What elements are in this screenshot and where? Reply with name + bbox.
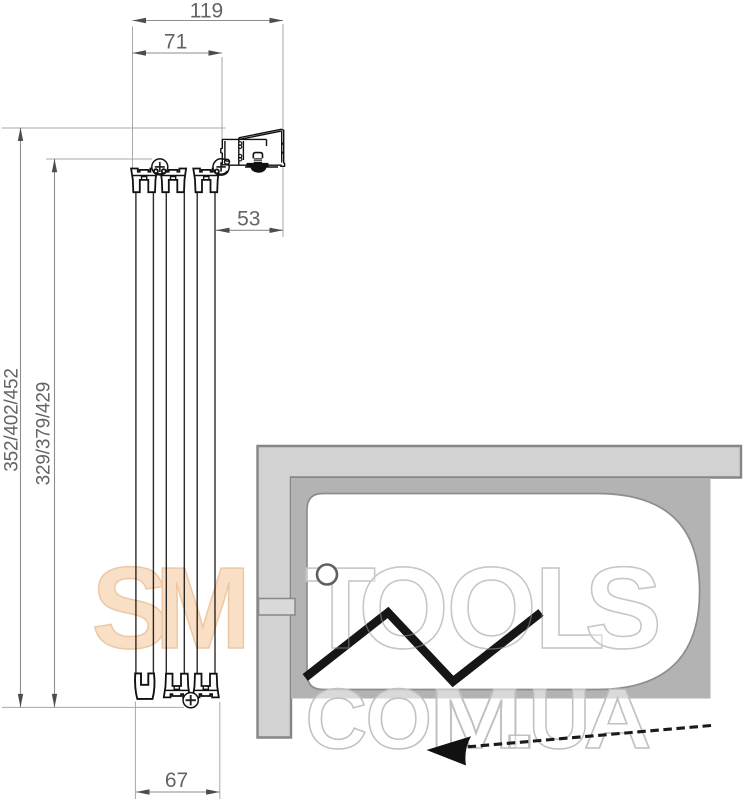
svg-text:U: U — [529, 672, 591, 767]
svg-text:53: 53 — [237, 208, 260, 231]
svg-text:C: C — [306, 672, 368, 767]
svg-text:119: 119 — [190, 0, 223, 22]
svg-text:352/402/452: 352/402/452 — [2, 368, 23, 471]
svg-text:71: 71 — [164, 30, 187, 53]
svg-text:67: 67 — [165, 769, 188, 792]
svg-text:M: M — [155, 543, 252, 673]
svg-text:O: O — [366, 672, 433, 767]
svg-text:A: A — [584, 672, 652, 767]
svg-text:329/379/429: 329/379/429 — [33, 382, 54, 485]
